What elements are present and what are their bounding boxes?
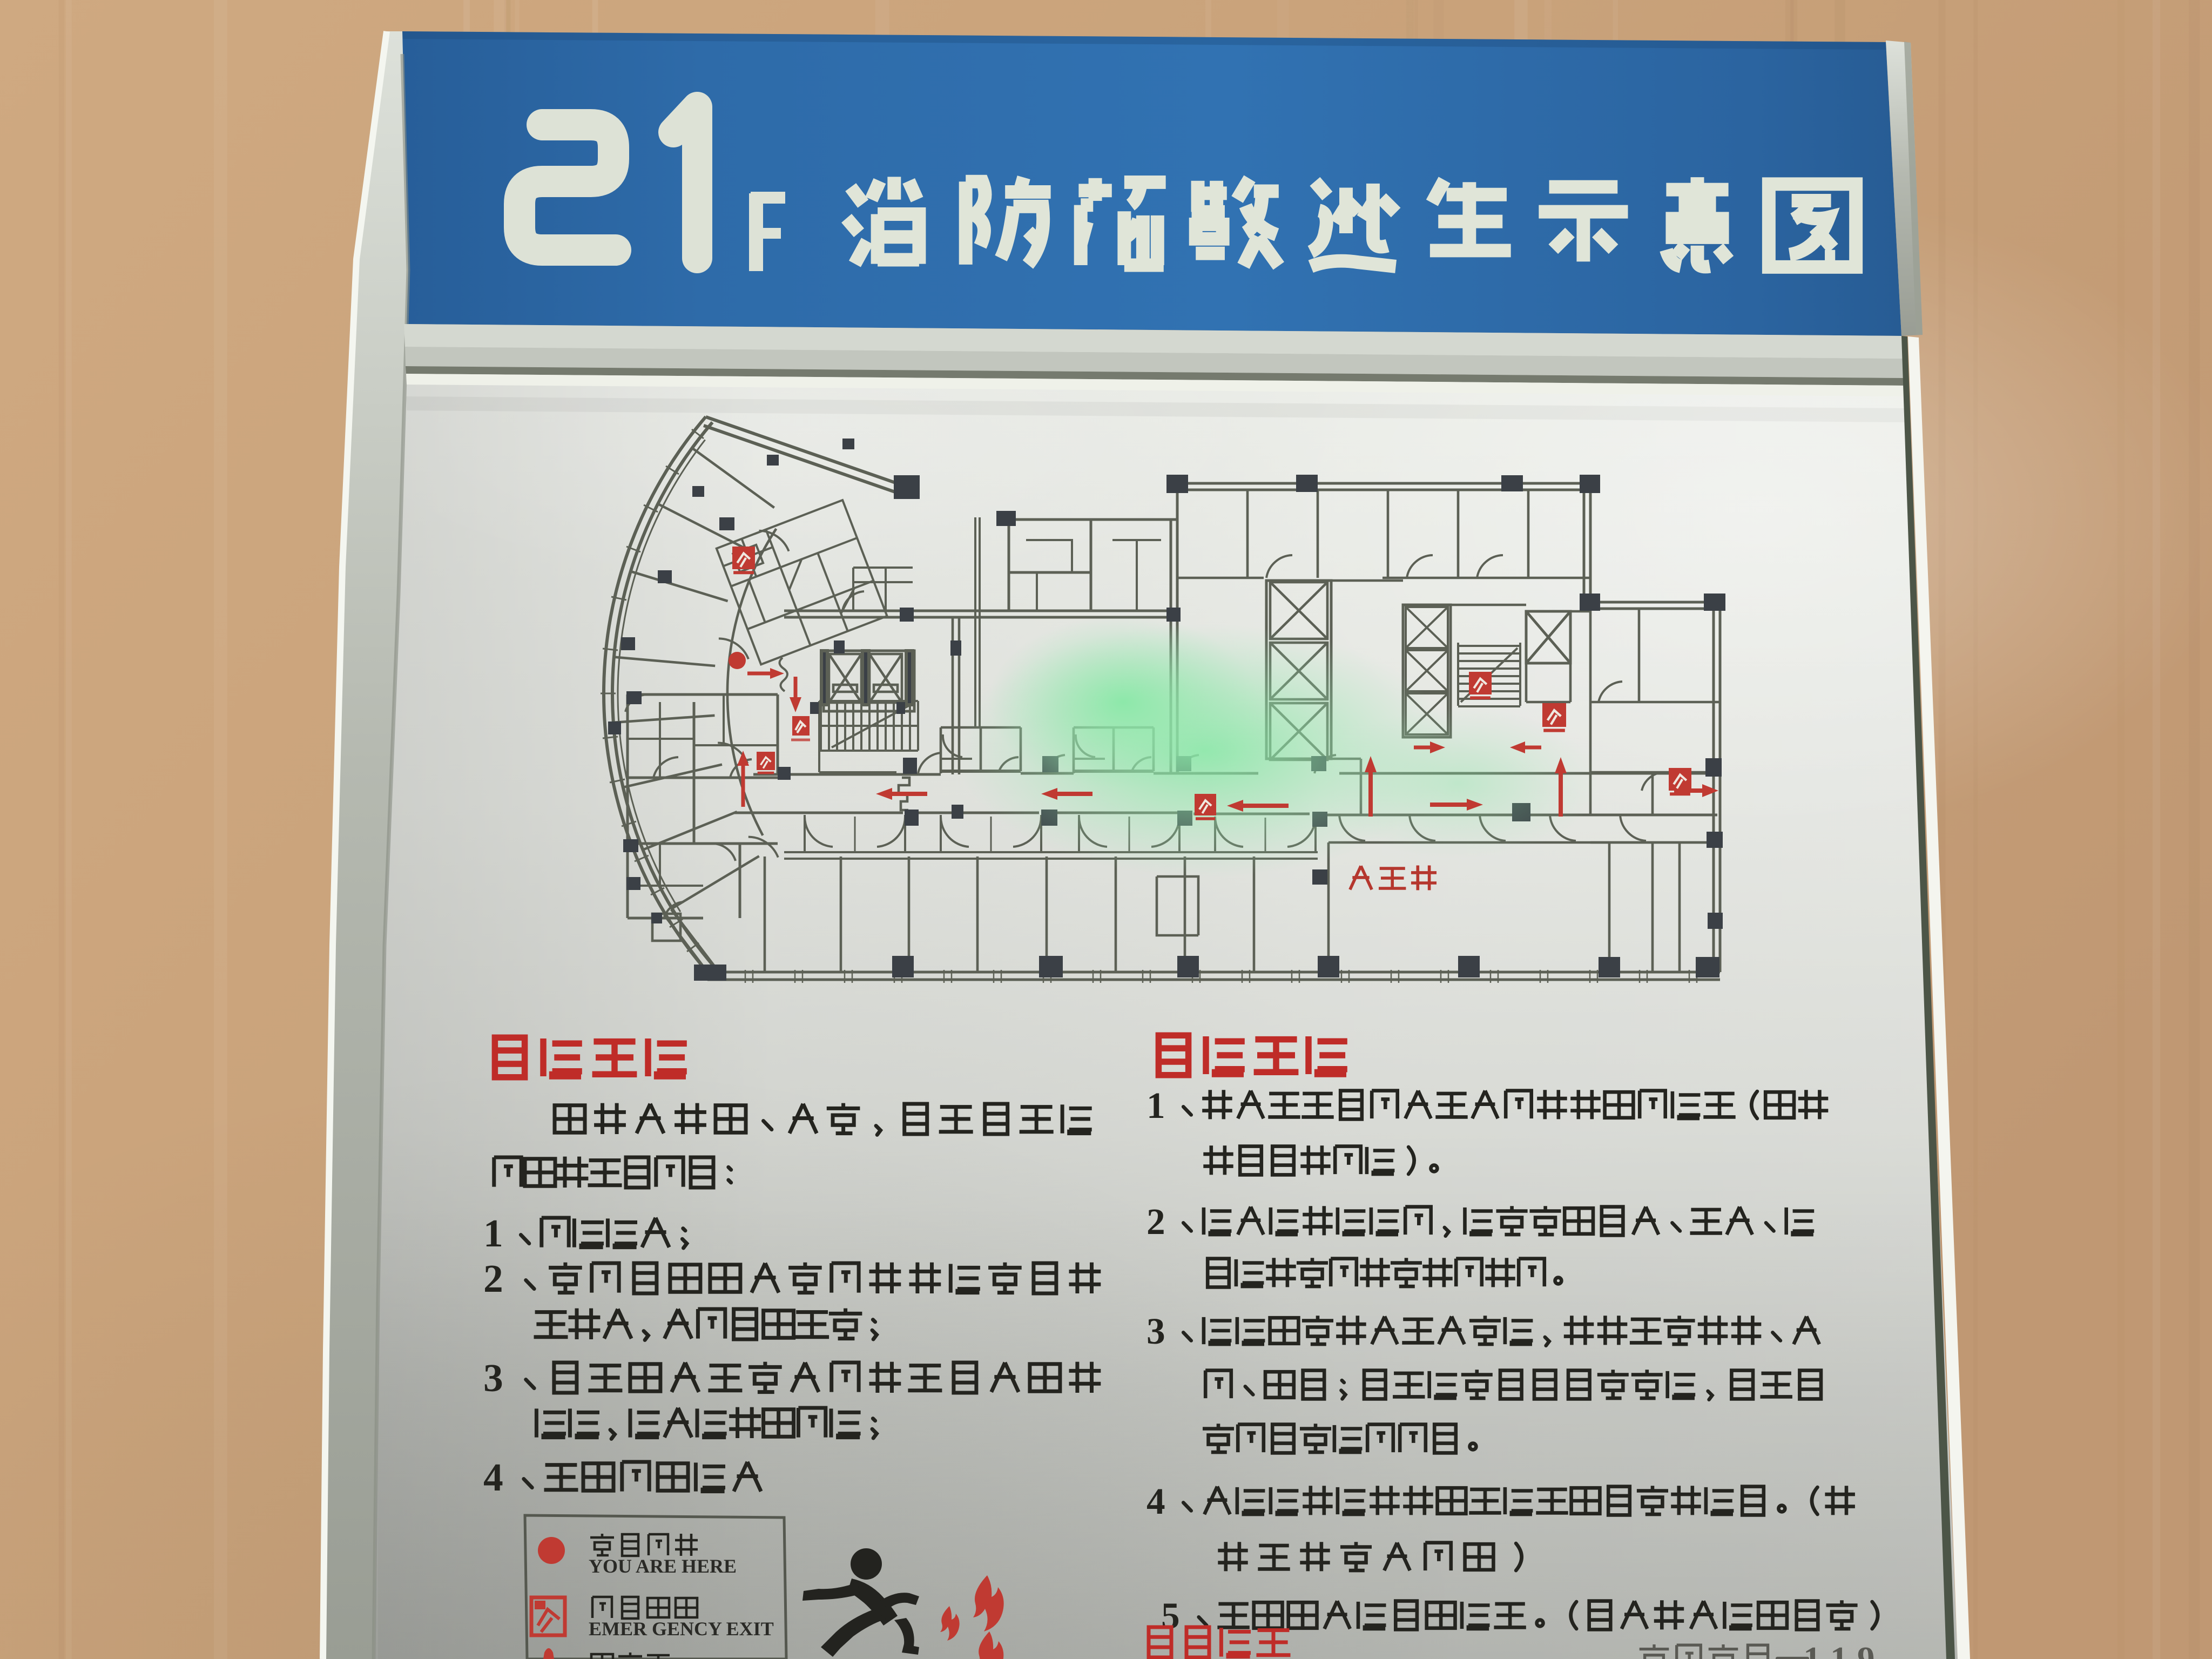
- svg-text:1: 1: [1803, 1640, 1821, 1659]
- svg-text:EMER GENCY EXIT: EMER GENCY EXIT: [589, 1618, 774, 1640]
- svg-text:2: 2: [483, 1257, 503, 1300]
- svg-text:1: 1: [1830, 1640, 1848, 1659]
- svg-text:3: 3: [1147, 1310, 1165, 1352]
- svg-text:YOU ARE HERE: YOU ARE HERE: [589, 1555, 737, 1577]
- svg-text:9: 9: [1857, 1640, 1875, 1659]
- svg-text:3: 3: [483, 1356, 503, 1400]
- svg-text:4: 4: [483, 1455, 503, 1499]
- svg-text:1: 1: [1147, 1084, 1165, 1126]
- svg-text:4: 4: [1147, 1480, 1165, 1522]
- svg-text:2: 2: [1147, 1201, 1165, 1242]
- svg-text:1: 1: [483, 1211, 503, 1255]
